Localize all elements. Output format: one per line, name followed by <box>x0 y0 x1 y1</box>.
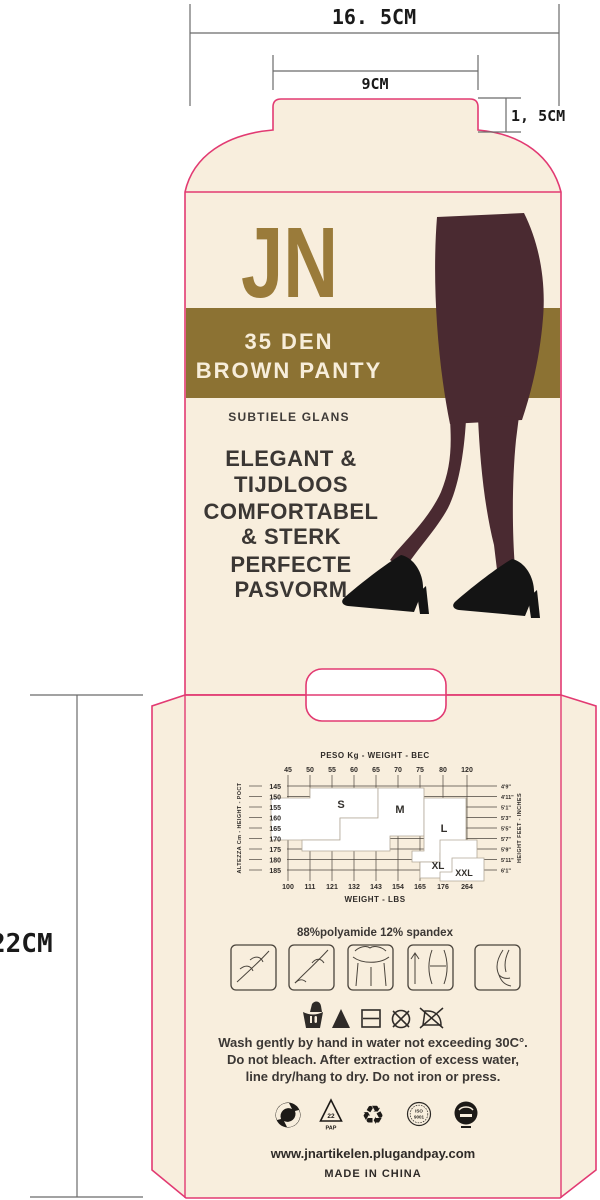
svg-text:5'3": 5'3" <box>501 816 511 822</box>
feature-2-line2: & STERK <box>241 524 341 549</box>
svg-text:170: 170 <box>269 837 281 844</box>
care-instructions-text: Wash gently by hand in water not exceedi… <box>218 1035 528 1084</box>
svg-text:65: 65 <box>372 767 380 774</box>
svg-text:111: 111 <box>305 884 316 891</box>
svg-text:100: 100 <box>282 884 294 891</box>
band-line1: 35 DEN <box>244 329 333 354</box>
svg-text:143: 143 <box>370 884 382 891</box>
svg-text:160: 160 <box>269 816 281 823</box>
feature-3-line1: PERFECTE <box>230 552 351 577</box>
origin-label: MADE IN CHINA <box>324 1168 421 1180</box>
svg-text:155: 155 <box>269 805 281 812</box>
tab-height-dimension-label: 1, 5CM <box>511 107 565 125</box>
svg-text:5'7": 5'7" <box>501 837 511 843</box>
svg-text:132: 132 <box>348 884 360 891</box>
band-line2: BROWN PANTY <box>196 358 383 383</box>
tab-width-dimension-label: 9CM <box>361 75 388 93</box>
svg-text:45: 45 <box>284 767 292 774</box>
composition-text: 88%polyamide 12% spandex <box>297 927 454 939</box>
svg-text:80: 80 <box>439 767 447 774</box>
left-axis-values: 145 150 155 160 165 170 175 180 185 <box>269 784 281 875</box>
size-label-xl: XL <box>432 861 445 872</box>
svg-text:4'9": 4'9" <box>501 785 511 791</box>
size-label-s: S <box>337 799 344 811</box>
svg-text:185: 185 <box>269 868 281 875</box>
size-label-m: M <box>395 804 404 816</box>
svg-text:9001: 9001 <box>414 1115 425 1120</box>
svg-text:165: 165 <box>414 884 426 891</box>
brand-logo: JN <box>241 207 338 319</box>
feature-2-line1: COMFORTABEL <box>204 499 379 524</box>
right-axis-rotated-label: HEIGHT FEET - INCHES <box>517 793 523 863</box>
svg-text:4'11": 4'11" <box>501 795 514 801</box>
svg-text:PAP: PAP <box>326 1126 337 1132</box>
svg-text:150: 150 <box>269 795 281 802</box>
size-label-l: L <box>441 823 448 835</box>
size-chart-bottom-label: WEIGHT - LBS <box>344 895 405 904</box>
svg-text:120: 120 <box>461 767 473 774</box>
svg-text:5'11": 5'11" <box>501 858 514 864</box>
total-width-dimension-label: 16. 5CM <box>332 5 416 29</box>
svg-text:5'5": 5'5" <box>501 827 511 833</box>
svg-text:5'1": 5'1" <box>501 806 511 812</box>
svg-text:154: 154 <box>392 884 404 891</box>
tagline: SUBTIELE GLANS <box>228 410 349 424</box>
packaging-dieline-sheet: 16. 5CM 9CM 1, 5CM 22CM JN 35 DEN BROWN … <box>0 0 600 1200</box>
hips-shape <box>435 213 544 424</box>
svg-text:22: 22 <box>327 1113 335 1120</box>
care-line-1: Wash gently by hand in water not exceedi… <box>218 1035 528 1050</box>
feature-1-line2: TIJDLOOS <box>234 472 348 497</box>
svg-text:121: 121 <box>326 884 338 891</box>
feature-1-line1: ELEGANT & <box>225 446 357 471</box>
svg-text:175: 175 <box>269 847 281 854</box>
care-line-2: Do not bleach. After extraction of exces… <box>227 1052 519 1067</box>
svg-text:5'9": 5'9" <box>501 848 511 854</box>
svg-text:6'1": 6'1" <box>501 869 511 875</box>
bottom-axis-values: 100 111 121 132 143 154 165 176 264 <box>282 884 473 891</box>
svg-text:180: 180 <box>269 858 281 865</box>
dieline-graphics: 16. 5CM 9CM 1, 5CM 22CM JN 35 DEN BROWN … <box>0 0 600 1200</box>
recycling-mobius-icon: ♻ <box>361 1100 384 1130</box>
svg-text:145: 145 <box>269 784 281 791</box>
svg-text:75: 75 <box>416 767 424 774</box>
back-height-dimension-label: 22CM <box>0 929 53 959</box>
svg-text:165: 165 <box>269 826 281 833</box>
svg-text:50: 50 <box>306 767 314 774</box>
top-axis-values: 45 50 55 60 65 70 75 80 120 <box>284 767 473 774</box>
do-not-iron-icon <box>420 1008 443 1028</box>
svg-text:55: 55 <box>328 767 336 774</box>
green-dot-icon <box>276 1103 301 1128</box>
care-line-3: line dry/hang to dry. Do not iron or pre… <box>246 1069 501 1084</box>
feature-3-line2: PASVORM <box>234 577 347 602</box>
svg-text:70: 70 <box>394 767 402 774</box>
size-label-xxl: XXL <box>455 868 473 878</box>
svg-text:60: 60 <box>350 767 358 774</box>
svg-text:ISO: ISO <box>415 1109 423 1114</box>
svg-text:176: 176 <box>437 884 449 891</box>
website-url: www.jnartikelen.plugandpay.com <box>270 1146 475 1161</box>
svg-text:264: 264 <box>461 884 473 891</box>
left-axis-rotated-label: ALTEZZA Cm - HEIGHT - РОСТ <box>237 782 243 873</box>
size-chart-top-label: PESO Kg - WEIGHT - ВЕС <box>320 751 429 760</box>
